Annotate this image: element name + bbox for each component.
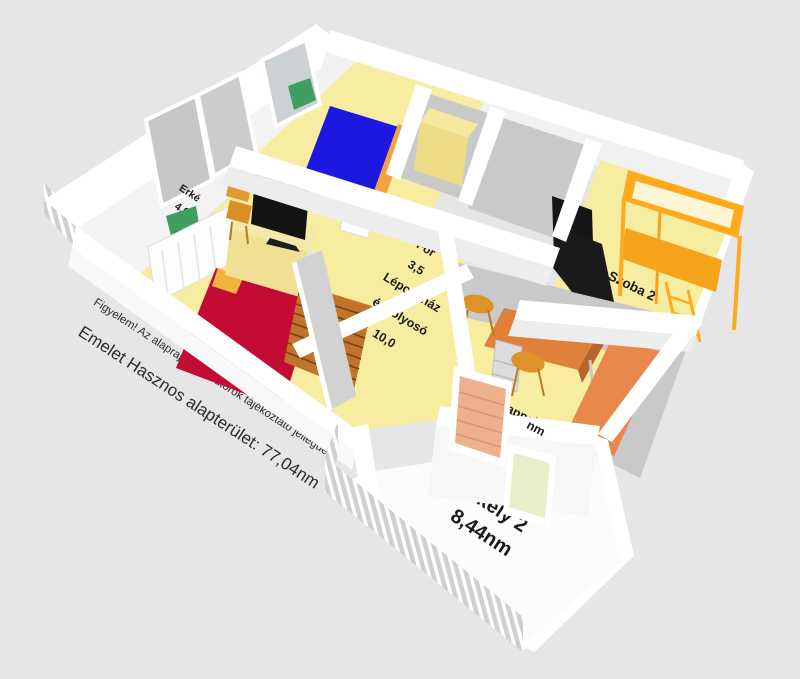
door-green-pane: [503, 444, 556, 528]
floorplan-3d-render: Figyelem! Az alaprajz és a bútorok tájék…: [0, 0, 800, 679]
window-salmon-blind: [448, 366, 512, 468]
